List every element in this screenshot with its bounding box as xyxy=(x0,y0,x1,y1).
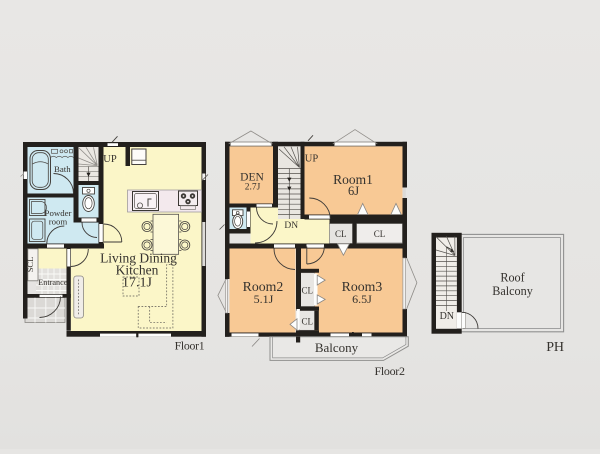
svg-text:DN: DN xyxy=(284,221,298,231)
svg-text:UP: UP xyxy=(305,153,319,164)
svg-text:6.5J: 6.5J xyxy=(352,292,372,306)
svg-text:CL: CL xyxy=(302,317,314,327)
svg-text:CL: CL xyxy=(374,229,386,239)
svg-text:CL: CL xyxy=(335,229,347,239)
svg-text:Entrance: Entrance xyxy=(38,278,67,287)
svg-text:SCL: SCL xyxy=(25,257,35,273)
svg-text:Balcony: Balcony xyxy=(492,284,534,298)
svg-text:17.1J: 17.1J xyxy=(122,276,153,291)
svg-text:Floor1: Floor1 xyxy=(175,339,205,353)
svg-text:DN: DN xyxy=(440,311,454,322)
svg-text:Floor2: Floor2 xyxy=(374,364,405,378)
svg-text:PH: PH xyxy=(546,340,564,355)
svg-text:Roof: Roof xyxy=(500,271,525,285)
svg-text:2.7J: 2.7J xyxy=(245,183,261,193)
svg-text:6J: 6J xyxy=(348,184,359,198)
svg-text:5.1J: 5.1J xyxy=(254,292,274,306)
svg-text:CL: CL xyxy=(302,286,314,296)
svg-text:room: room xyxy=(49,217,68,227)
svg-text:UP: UP xyxy=(103,154,117,165)
svg-text:Bath: Bath xyxy=(54,164,71,174)
svg-text:Balcony: Balcony xyxy=(315,340,359,355)
